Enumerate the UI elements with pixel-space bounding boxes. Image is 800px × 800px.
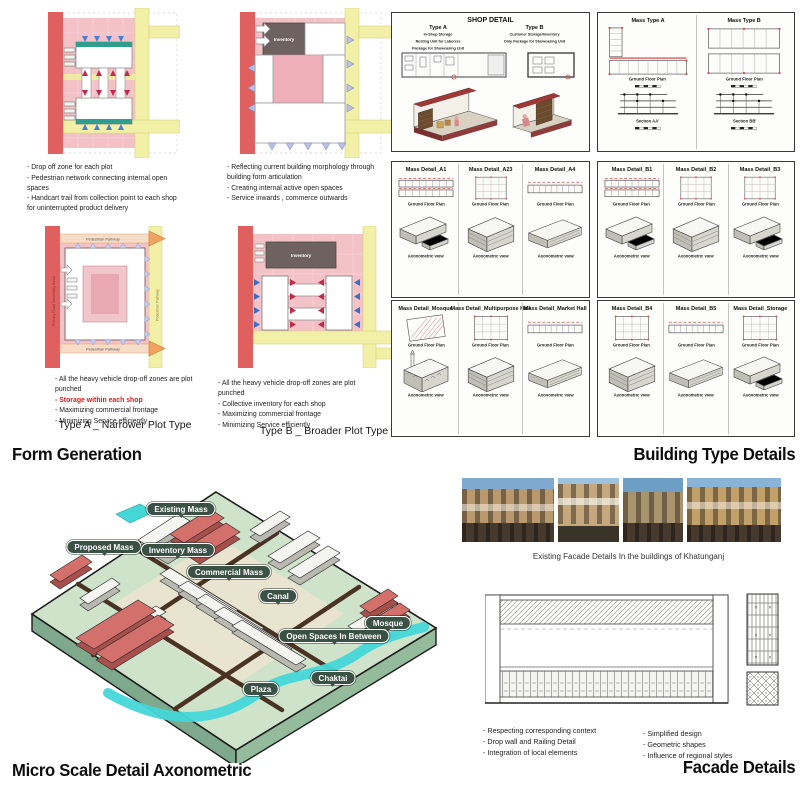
- diagram-type-b-plot: Inventory: [238, 226, 395, 368]
- plan-caption: Ground Floor Plan: [407, 203, 444, 207]
- axon-label-inventory-mass: Inventory Mass: [141, 543, 215, 557]
- heading-form-generation: Form Generation: [12, 444, 142, 465]
- bullet: - Creating internal active open spaces: [227, 184, 395, 194]
- facade-photo: [623, 478, 683, 542]
- drop-wall-band: [500, 600, 713, 624]
- mass-detail-column: Mass Detail_A1 Ground Floor Plan Axonome…: [394, 164, 458, 295]
- svg-text:×: ×: [769, 655, 772, 661]
- plan-drawing: [603, 175, 661, 201]
- mass-detail-column: Mass Detail_B5 Ground Floor Plan Axonome…: [663, 303, 727, 434]
- diagram-drop-off-zones: [30, 8, 180, 158]
- axon-label-chaktai: Chaktai: [311, 671, 356, 685]
- column-title: Mass Detail_B5: [676, 306, 717, 312]
- axon-drawing: [730, 209, 790, 253]
- mass-detail-column: Mass Detail_B4 Ground Floor Plan Axonome…: [600, 303, 663, 434]
- axon-label-existing-mass: Existing Mass: [146, 502, 215, 516]
- primary-road: [238, 226, 253, 368]
- plan-caption: Ground Floor Plan: [726, 78, 763, 82]
- primary-road: [48, 12, 63, 154]
- caption-type-a: Type A _ Narrower Plot Type: [30, 419, 220, 431]
- mass-type-a-plan: [604, 26, 692, 76]
- bullet: - Respecting corresponding context: [483, 726, 633, 736]
- primary-road: [240, 12, 255, 154]
- mass-detail-column: Mass Detail_Market Hall Ground Floor Pla…: [522, 303, 587, 434]
- svg-text:Pedestrian Pathway: Pedestrian Pathway: [86, 238, 120, 242]
- axon-caption: Axonometric view: [678, 255, 714, 259]
- bullet: - Service inwards , commerce outwards: [227, 194, 395, 204]
- panel-mass-detail-b2: Mass Detail_B4 Ground Floor Plan Axonome…: [597, 300, 795, 437]
- facade-photo: [462, 478, 554, 542]
- svg-text:×: ×: [769, 605, 772, 611]
- connector-bars: [82, 68, 125, 98]
- plan-caption: Ground Floor Plan: [537, 344, 574, 348]
- svg-text:Inventory: Inventory: [274, 37, 295, 42]
- shop-type-b-sub: Customer Storage/Inventory: [504, 33, 565, 37]
- axon-caption: Axonometric view: [408, 255, 444, 259]
- diagram-building-morphology: Inventory: [228, 8, 395, 158]
- shop-building-top: [76, 42, 132, 68]
- axon-drawing: [667, 209, 725, 253]
- mass-type-a-column: Mass Type A Ground Floor Plan Section AA…: [600, 15, 696, 149]
- plan-caption: Ground Floor Plan: [407, 344, 444, 348]
- bullet: - Reflecting current building morphology…: [227, 163, 395, 183]
- bullet: - Integration of local elements: [483, 748, 633, 758]
- road-label-left: Primary Road Secondary Road: [52, 276, 56, 326]
- axon-caption: Axonometric view: [614, 394, 650, 398]
- heading-building-type-details: Building Type Details: [633, 444, 795, 465]
- diagram-type-a-plot: Primary Road Secondary Road Pedestrian P…: [45, 226, 185, 368]
- central-court: [91, 274, 119, 314]
- shop-type-b-sub: Only Package for Showcasing Unit: [504, 40, 565, 44]
- plan-caption: Ground Floor Plan: [678, 344, 715, 348]
- bullet: - Maximizing commercial frontage: [218, 410, 378, 420]
- shop-type-b-title: Type B: [489, 25, 580, 31]
- axon-caption: Axonometric view: [678, 394, 714, 398]
- plan-drawing: [397, 175, 455, 201]
- column-title: Mass Detail_B2: [676, 167, 717, 173]
- svg-text:×: ×: [755, 655, 758, 661]
- axon-drawing: [602, 209, 662, 253]
- plan-drawing: [466, 314, 516, 342]
- column-title: Mass Detail_B4: [611, 306, 652, 312]
- mass-type-a-title: Mass Type A: [631, 18, 664, 24]
- mass-detail-column: Mass Detail_Mosque Ground Floor Plan Axo…: [394, 303, 458, 434]
- grille-detail: [747, 594, 778, 665]
- shop-detail-title: SHOP DETAIL: [467, 17, 513, 24]
- svg-text:×: ×: [755, 633, 758, 639]
- plan-drawing: [667, 314, 725, 342]
- svg-text:Inventory: Inventory: [291, 253, 312, 258]
- facade-photo: [687, 478, 781, 542]
- axon-caption: Axonometric view: [537, 394, 573, 398]
- axon-drawing: [666, 350, 726, 392]
- section-caption: Section BB': [733, 120, 756, 124]
- axon-label-plaza: Plaza: [243, 682, 279, 696]
- axon-caption: Axonometric view: [742, 394, 778, 398]
- pattern-detail: [747, 672, 778, 705]
- mass-detail-column: Mass Detail_B2 Ground Floor Plan Axonome…: [663, 164, 727, 295]
- panel-mass-detail-b: Mass Detail_B1 Ground Floor Plan Axonome…: [597, 161, 795, 298]
- plan-caption: Ground Floor Plan: [613, 344, 650, 348]
- axon-label-open-spaces: Open Spaces In Between: [278, 629, 389, 643]
- svg-text:×: ×: [755, 605, 758, 611]
- railing-band: [500, 671, 713, 697]
- shop-type-a-title: Type A: [400, 25, 477, 31]
- mass-detail-column: Mass Detail_B3 Ground Floor Plan Axonome…: [728, 164, 792, 295]
- mass-detail-column: Mass Detail_Storage Ground Floor Plan Ax…: [728, 303, 792, 434]
- column-title: Mass Detail_A4: [535, 167, 576, 173]
- bullet: - Geometric shapes: [643, 740, 788, 750]
- axon-caption: Axonometric view: [408, 394, 444, 398]
- mass-detail-column: Mass Detail_Multipurpose Hall Ground Flo…: [458, 303, 523, 434]
- scale-bar: [635, 127, 661, 130]
- bullet: - All the heavy vehicle drop-off zones a…: [218, 379, 378, 399]
- plan-drawing: [607, 314, 657, 342]
- shop-plans-drawing: [396, 49, 586, 81]
- plan-caption: Ground Floor Plan: [472, 344, 509, 348]
- axon-caption: Axonometric view: [614, 255, 650, 259]
- panel-mass-detail-a: Mass Detail_A1 Ground Floor Plan Axonome…: [391, 161, 590, 298]
- facade-detail-swatches: ×× ×× ××: [746, 593, 780, 708]
- plan-drawing: [526, 175, 584, 201]
- plan-drawing: [735, 314, 785, 342]
- svg-text:Pedestrian Pathway: Pedestrian Pathway: [86, 348, 120, 352]
- mass-type-b-title: Mass Type B: [728, 18, 761, 24]
- portfolio-page: Inventory - Drop off zone for each plot …: [0, 0, 800, 800]
- facade-elevation-drawing: [485, 593, 733, 708]
- axon-drawing: [396, 209, 456, 253]
- axon-drawing: [525, 209, 585, 253]
- plan-caption: Ground Floor Plan: [742, 344, 779, 348]
- bullets-diagram1: - Drop off zone for each plot - Pedestri…: [27, 163, 185, 215]
- axon-drawing: [462, 209, 520, 253]
- axon-label-mosque: Mosque: [365, 616, 411, 630]
- heading-facade-details: Facade Details: [683, 757, 795, 778]
- column-title: Mass Detail_B3: [740, 167, 781, 173]
- axon-drawing: [603, 350, 661, 392]
- bullet: - Drop wall and Railing Detail: [483, 737, 633, 747]
- mass-detail-column: Mass Detail_B1 Ground Floor Plan Axonome…: [600, 164, 663, 295]
- shop-type-a-sub: In-Shop Storage: [412, 33, 464, 37]
- bullet: - Handcart trail from collection point t…: [27, 194, 185, 214]
- column-title: Mass Detail_A23: [469, 167, 513, 173]
- axon-drawing: [398, 350, 454, 392]
- bullet: - Drop off zone for each plot: [27, 163, 185, 173]
- mass-type-b-section: [700, 88, 788, 118]
- mass-type-a-section: [604, 88, 692, 118]
- shop-type-a-sub: Package for Showcasing Unit: [412, 47, 464, 51]
- courtyard: [273, 55, 323, 103]
- bullet: - Collective inventory for each shop: [218, 400, 378, 410]
- column-title: Mass Detail_A1: [406, 167, 447, 173]
- plan-caption: Ground Floor Plan: [629, 78, 666, 82]
- mass-type-b-plan: [700, 26, 788, 76]
- axon-label-proposed-mass: Proposed Mass: [66, 540, 141, 554]
- plan-caption: Ground Floor Plan: [537, 203, 574, 207]
- panel-mass-detail-civic: Mass Detail_Mosque Ground Floor Plan Axo…: [391, 300, 590, 437]
- shop-building-bottom: [76, 98, 132, 124]
- road-label-right: Pedestrian Pathway: [156, 289, 160, 321]
- plan-caption: Ground Floor Plan: [678, 203, 715, 207]
- panel-shop-detail: SHOP DETAIL Type A In-Shop Storage Resti…: [391, 12, 590, 152]
- mass-type-b-column: Mass Type B Ground Floor Plan Section BB…: [696, 15, 793, 149]
- bullet: - Simplified design: [643, 729, 788, 739]
- bullet-highlight: - Storage within each shop: [55, 396, 205, 406]
- axon-drawing: [462, 350, 520, 392]
- axon-caption: Axonometric view: [473, 255, 509, 259]
- scale-bar: [731, 127, 757, 130]
- mass-detail-column: Mass Detail_A4 Ground Floor Plan Axonome…: [522, 164, 587, 295]
- svg-text:×: ×: [769, 633, 772, 639]
- axon-drawing: [730, 350, 790, 392]
- axon-caption: Axonometric view: [537, 255, 573, 259]
- section-caption: Section AA': [636, 120, 659, 124]
- axon-drawing: [525, 350, 585, 392]
- facade-photo: [558, 478, 619, 542]
- facade-photo-strip: [462, 478, 781, 542]
- bullet: - All the heavy vehicle drop-off zones a…: [55, 375, 205, 395]
- plan-drawing: [466, 175, 516, 201]
- column-title: Mass Detail_B1: [611, 167, 652, 173]
- bullets-diagram2: - Reflecting current building morphology…: [227, 163, 395, 205]
- axon-caption: Axonometric view: [742, 255, 778, 259]
- bullet: - Maximizing commercial frontage: [55, 406, 205, 416]
- plan-drawing: [735, 175, 785, 201]
- column-title: Mass Detail_Market Hall: [524, 306, 587, 312]
- plan-caption: Ground Floor Plan: [742, 203, 779, 207]
- axon-label-commercial-mass: Commercial Mass: [187, 565, 271, 579]
- truck-icons: [255, 244, 264, 262]
- facade-photos-caption: Existing Facade Details In the buildings…: [462, 552, 795, 561]
- plan-drawing: [526, 314, 584, 342]
- column-title: Mass Detail_Multipurpose Hall: [451, 306, 531, 312]
- column-title: Mass Detail_Storage: [733, 306, 787, 312]
- shop-type-a-sub: Resting Unit for Laborers: [412, 40, 464, 44]
- plan-caption: Ground Floor Plan: [472, 203, 509, 207]
- axon-label-canal: Canal: [259, 589, 297, 603]
- plan-drawing: [671, 175, 721, 201]
- panel-mass-types: Mass Type A Ground Floor Plan Section AA…: [597, 12, 795, 152]
- shop-cutaway-drawing: [396, 81, 586, 143]
- column-title: Mass Detail_Mosque: [399, 306, 453, 312]
- plan-caption: Ground Floor Plan: [613, 203, 650, 207]
- facade-bullets-left: - Respecting corresponding context - Dro…: [483, 726, 633, 760]
- mass-detail-column: Mass Detail_A23 Ground Floor Plan Axonom…: [458, 164, 523, 295]
- plan-drawing: [398, 314, 454, 342]
- truck-icons: [67, 278, 77, 298]
- axon-caption: Axonometric view: [473, 394, 509, 398]
- bullet: - Pedestrian network connecting internal…: [27, 174, 185, 194]
- heading-micro-scale: Micro Scale Detail Axonometric: [12, 760, 251, 781]
